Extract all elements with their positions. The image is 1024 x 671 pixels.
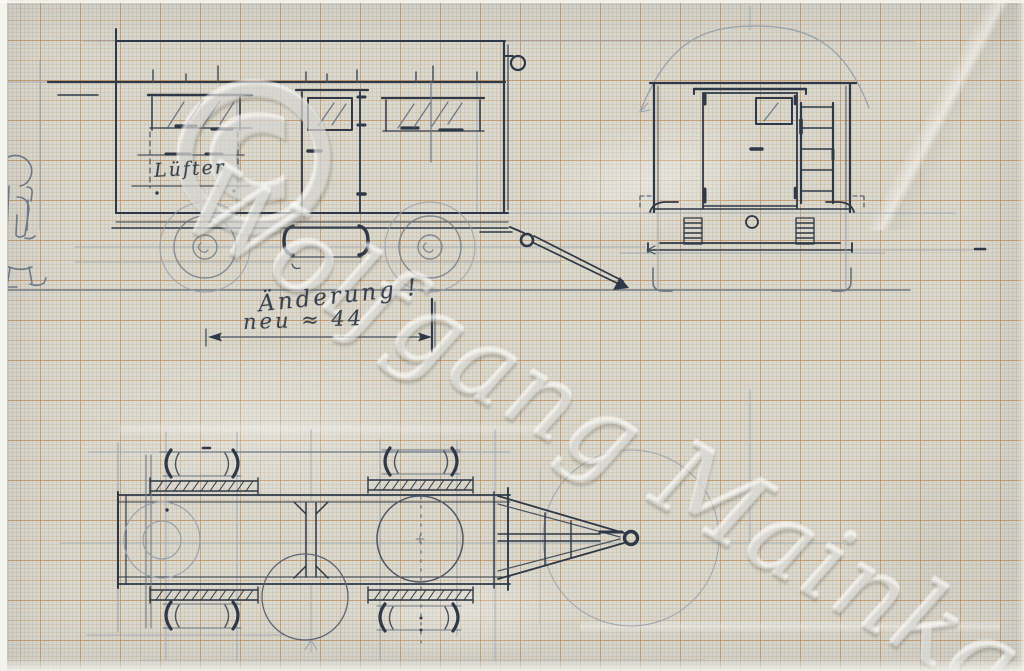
rear-view-drawing xyxy=(640,26,985,291)
roof-dome-arc xyxy=(640,26,869,112)
plan-view-drawing xyxy=(118,448,719,650)
drawbar-swing-circle xyxy=(543,450,719,626)
rear-center-ring xyxy=(746,216,758,228)
rear-springs xyxy=(684,218,814,244)
trailer-sketch xyxy=(0,0,1024,671)
umlaut-squiggle xyxy=(292,264,300,269)
side-window-left xyxy=(148,95,252,130)
towing-eye-side xyxy=(521,234,533,246)
turntable-circle-inner xyxy=(143,521,181,559)
paper-edge-left xyxy=(0,0,8,671)
paper-edge-bottom xyxy=(0,658,1024,671)
side-door xyxy=(296,90,368,213)
drawbar-side xyxy=(480,227,629,290)
graph-paper-scan: © Wolfgang Mainka Lüfter Änderung ! neu … xyxy=(0,0,1024,671)
turntable-circle-outer xyxy=(124,502,200,578)
rear-axle xyxy=(647,216,985,254)
toolbox xyxy=(284,226,368,257)
paper-edge-right xyxy=(1017,0,1024,671)
door-hinges xyxy=(358,97,365,194)
rear-door xyxy=(694,89,806,208)
paper-edge-top xyxy=(0,0,1024,3)
side-window-right xyxy=(382,82,484,162)
door-window xyxy=(308,98,352,130)
rear-wheels xyxy=(653,212,851,291)
rear-ladder xyxy=(801,103,833,203)
luefter-label: Lüfter xyxy=(153,156,226,182)
window-glass-hatch xyxy=(398,102,462,128)
side-view-drawing xyxy=(48,29,629,292)
drawbar-a-frame xyxy=(498,496,638,579)
rear-door-window xyxy=(756,98,792,124)
roof-rib-ticks xyxy=(153,66,477,82)
neu-dimension-label: neu ≈ 44 xyxy=(243,306,365,334)
window-glass-hatch xyxy=(168,100,234,127)
